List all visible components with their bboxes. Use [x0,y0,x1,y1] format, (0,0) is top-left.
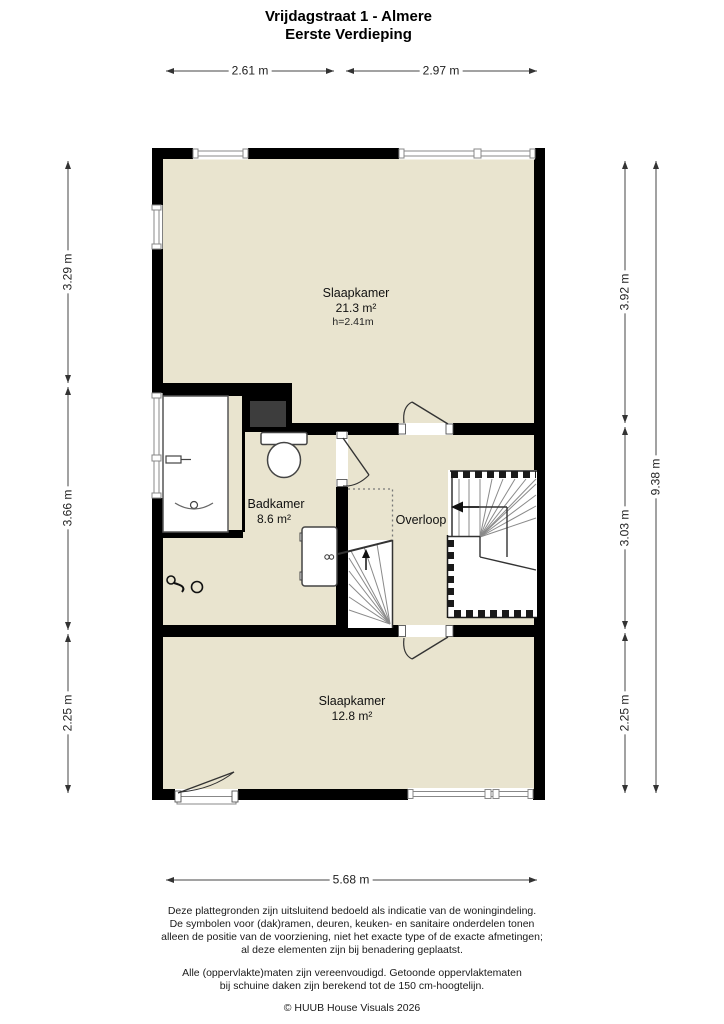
disclaimer-line: De symbolen voor (dak)ramen, deuren, keu… [0,918,704,931]
plan-title: Vrijdagstraat 1 - Almere [152,8,545,25]
dim-bottom: 5.68 m [330,874,373,887]
disclaimer-line: Alle (oppervlakte)maten zijn vereenvoudi… [0,967,704,980]
dim-left-2: 3.66 m [62,487,75,530]
room-landing-name: Overloop [396,513,447,527]
disclaimer-line: Deze plattegronden zijn uitsluitend bedo… [0,905,704,918]
disclaimer-line: alleen de positie van de voorziening, ni… [0,931,704,944]
shower-head-icon [166,456,181,463]
window-top-right [399,148,535,160]
shaft [250,401,286,427]
disclaimer-line: bij schuine daken zijn berekend tot de 1… [0,980,704,993]
window-left-upper [151,205,163,249]
drain-icon [191,502,198,509]
floorplan-drawing [0,0,724,1024]
window-top-left [193,148,248,160]
room-bathroom-area: 8.6 m² [257,512,291,526]
room-bedroom1-area: 21.3 m² [336,301,377,315]
dim-left-3: 2.25 m [62,692,75,735]
floorplan-page: Vrijdagstraat 1 - Almere Eerste Verdiepi… [0,0,724,1024]
plan-subtitle: Eerste Verdieping [152,26,545,43]
disclaimer-line: al deze elementen zijn bij benadering ge… [0,944,704,957]
dim-top-right: 2.97 m [420,65,463,78]
shower [163,396,228,532]
window-left-lower [151,393,163,498]
dim-right-3: 2.25 m [619,692,632,735]
room-bedroom1-ceiling: h=2.41m [332,316,373,328]
dim-left-1: 3.29 m [62,251,75,294]
radiator-panel [300,527,337,586]
dim-top-left: 2.61 m [229,65,272,78]
dim-right-2: 3.03 m [619,507,632,550]
room-bedroom2-name: Slaapkamer [319,694,386,708]
staircase-main [448,470,538,618]
dim-right-total: 9.38 m [650,456,663,499]
dim-right-1: 3.92 m [619,271,632,314]
window-bottom-right [408,788,533,800]
room-bathroom-name: Badkamer [248,497,305,511]
room-bedroom1-name: Slaapkamer [323,286,390,300]
room-bedroom2-area: 12.8 m² [332,709,373,723]
copyright: © HUUB House Visuals 2026 [0,1002,704,1015]
